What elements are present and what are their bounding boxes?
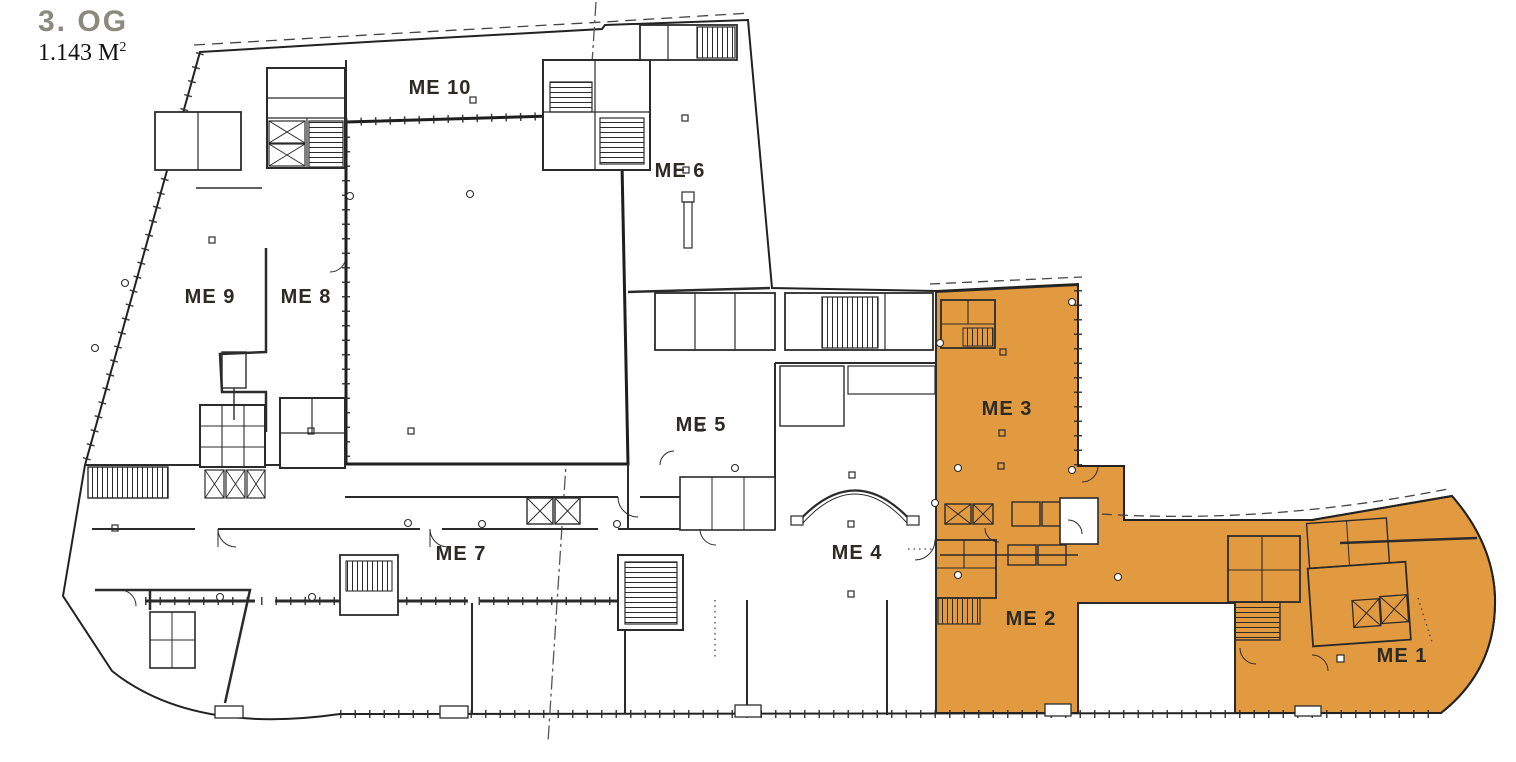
core-topleft-stairs-elevators bbox=[267, 68, 345, 168]
unit-label-me1: ME 1 bbox=[1377, 645, 1428, 667]
bottom-door-leaves bbox=[215, 704, 1321, 718]
core-me8-bottom bbox=[88, 352, 345, 668]
unit-label-me7: ME 7 bbox=[436, 543, 487, 565]
core-me5-row bbox=[655, 293, 933, 350]
unit-label-me3: ME 3 bbox=[982, 398, 1033, 420]
me6-interior bbox=[682, 192, 694, 248]
topleft-annex-block bbox=[155, 112, 241, 170]
floor-title: 3. OG bbox=[38, 6, 128, 38]
floor-area-value: 1.143 M bbox=[38, 40, 119, 66]
floor-area: 1.143 M2 bbox=[38, 40, 128, 67]
unit-label-me4: ME 4 bbox=[832, 542, 883, 564]
title-block: 3. OG 1.143 M2 bbox=[38, 6, 128, 67]
unit-label-me8: ME 8 bbox=[281, 286, 332, 308]
floorplan-page: 3. OG 1.143 M2 bbox=[0, 0, 1516, 762]
me4-bay-and-rooms bbox=[780, 366, 935, 525]
floorplan-canvas: ME 1 ME 2 ME 3 ME 4 ME 5 ME 6 ME 7 ME 8 … bbox=[0, 0, 1516, 762]
unit-label-me9: ME 9 bbox=[185, 286, 236, 308]
unit-label-me2: ME 2 bbox=[1006, 608, 1057, 630]
unit-label-me6: ME 6 bbox=[655, 160, 706, 182]
unit-label-me5: ME 5 bbox=[676, 414, 727, 436]
core-topmid-stairs bbox=[543, 25, 737, 170]
unit-label-me10: ME 10 bbox=[409, 77, 472, 99]
floor-area-exponent: 2 bbox=[119, 40, 126, 55]
corridor-entrance bbox=[1060, 498, 1098, 544]
